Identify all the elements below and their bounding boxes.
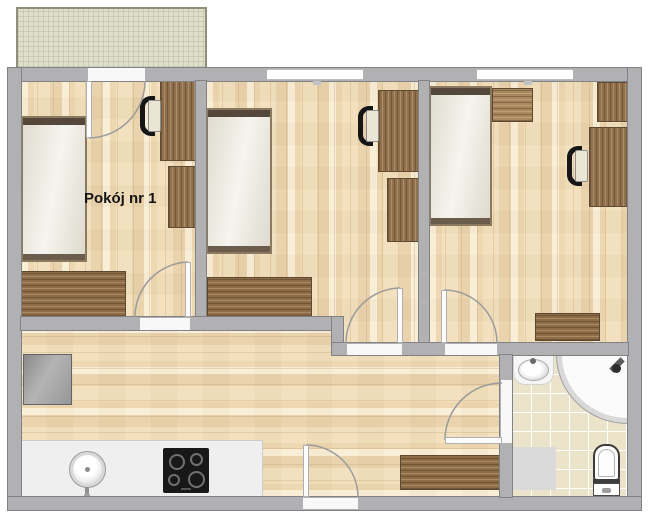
room1-door (185, 262, 191, 317)
room2-bed (206, 108, 272, 254)
sink-drain (85, 467, 90, 472)
room3-desk-chair (567, 146, 591, 188)
room3-bed (429, 86, 492, 226)
kitchen-counter (21, 440, 263, 497)
toilet (593, 444, 620, 481)
bed-headboard (431, 88, 490, 95)
chair-seat (575, 150, 588, 182)
bathroom-door-opening (501, 380, 512, 443)
room1-desk-chair (140, 96, 164, 138)
room2-desk (378, 90, 419, 172)
toilet-tank (593, 483, 620, 496)
bed-footboard (23, 254, 85, 260)
chair-seat (148, 100, 161, 132)
burner (168, 474, 180, 486)
cooktop (163, 448, 209, 493)
chair-seat (366, 110, 379, 142)
bed-footboard (431, 218, 490, 224)
room1-label: Pokój nr 1 (84, 190, 157, 207)
room3-door (441, 290, 447, 343)
room2-wardrobe (207, 277, 312, 317)
room3-window (477, 69, 573, 80)
wall-left (8, 68, 21, 510)
room1-cabinet (168, 166, 197, 228)
bath-mat (512, 447, 556, 490)
room2-door (397, 288, 403, 343)
room3-cabinet (597, 82, 628, 122)
floor-plan: Pokój nr 1 (0, 0, 649, 520)
bed-headboard (208, 110, 270, 117)
toilet-seat (598, 449, 615, 477)
room1-desk (160, 81, 197, 161)
bed-footboard (208, 246, 270, 252)
bed-headboard (23, 118, 85, 125)
shower-head-icon (612, 364, 621, 373)
room3-window-tick (524, 81, 532, 85)
burner (190, 453, 203, 466)
balcony (16, 7, 207, 69)
fridge (23, 354, 72, 405)
room2-window-tick (313, 81, 321, 85)
room3-desk (589, 127, 628, 207)
bathroom-door (445, 437, 502, 444)
entrance-door (303, 445, 309, 497)
wall-room1-room2 (196, 81, 206, 330)
toilet-flush-button (602, 488, 611, 493)
room3-door-opening (445, 344, 497, 355)
washbasin-faucet (530, 358, 536, 364)
room1-wardrobe (21, 271, 126, 317)
burner (169, 454, 185, 470)
hall-cabinet (400, 455, 500, 490)
room1-bed (21, 116, 87, 262)
wall-right (628, 68, 641, 510)
balcony-door (86, 81, 92, 138)
burner (188, 471, 205, 488)
room2-desk-chair (358, 106, 382, 148)
entrance-door-opening (303, 498, 358, 509)
room3-sideboard (492, 88, 533, 122)
room2-cabinet (387, 178, 419, 242)
wall-room2-room3 (419, 81, 429, 355)
room1-door-opening (140, 318, 190, 330)
balcony-door-opening (88, 68, 145, 81)
cooktop-controls (181, 488, 191, 490)
room2-door-opening (347, 344, 402, 355)
room3-dresser (535, 313, 600, 341)
room2-window (267, 69, 363, 80)
